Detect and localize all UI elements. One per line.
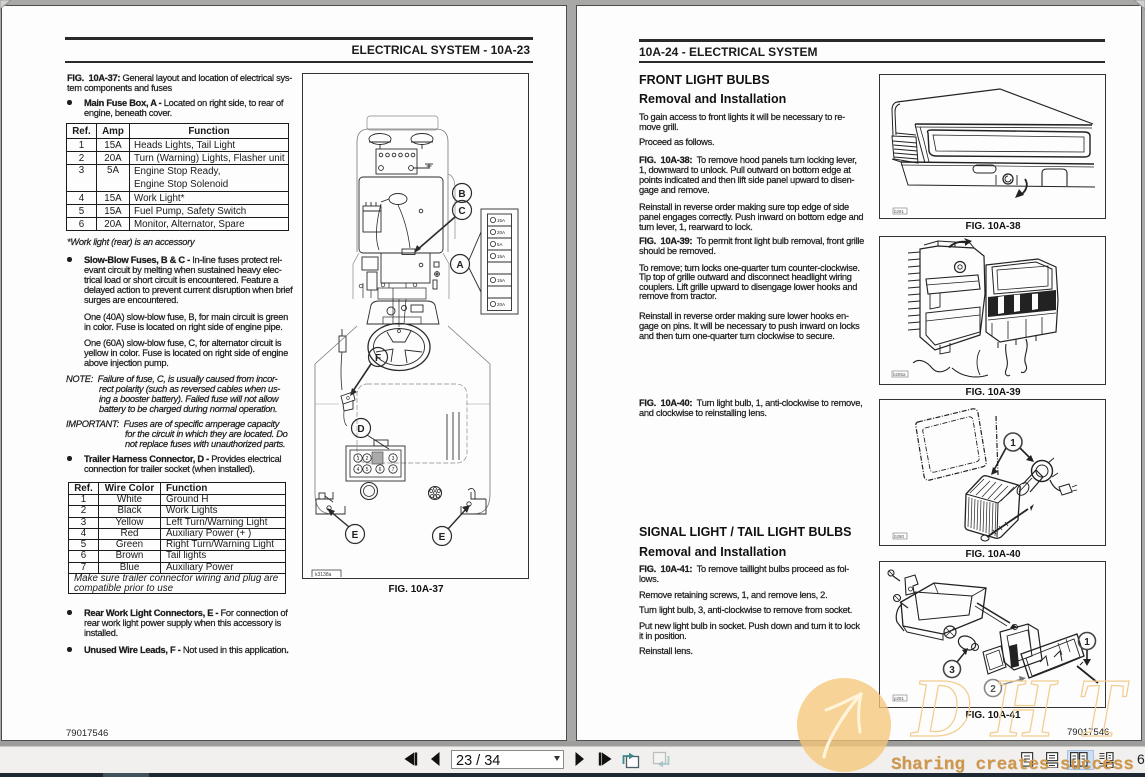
svg-text:2: 2 — [366, 456, 369, 462]
svg-text:15A: 15A — [497, 278, 505, 283]
svg-text:b285a: b285a — [893, 372, 906, 377]
svg-text:1: 1 — [1084, 637, 1090, 648]
svg-text:b281: b281 — [894, 209, 905, 214]
svg-text:B: B — [458, 189, 465, 200]
svg-text:7: 7 — [392, 467, 395, 473]
svg-text:b280: b280 — [894, 534, 905, 539]
svg-text:F: F — [375, 353, 381, 364]
svg-text:A: A — [456, 260, 463, 271]
svg-text:p281: p281 — [894, 696, 905, 701]
svg-text:E: E — [439, 532, 446, 543]
svg-text:6: 6 — [379, 467, 382, 473]
svg-text:C: C — [458, 206, 465, 217]
svg-text:D: D — [357, 424, 364, 435]
svg-text:4: 4 — [357, 467, 360, 473]
svg-text:20A: 20A — [497, 230, 505, 235]
svg-text:20A: 20A — [497, 302, 505, 307]
svg-text:15A: 15A — [497, 218, 505, 223]
svg-text:E: E — [352, 530, 359, 541]
svg-text:15A: 15A — [497, 254, 505, 259]
svg-text:5A: 5A — [497, 242, 503, 247]
svg-text:1: 1 — [357, 456, 360, 462]
svg-text:5: 5 — [366, 467, 369, 473]
svg-text:3: 3 — [949, 665, 955, 676]
svg-text:1: 1 — [1010, 438, 1016, 449]
svg-text:3: 3 — [392, 456, 395, 462]
svg-text:2: 2 — [990, 684, 996, 695]
svg-text:k3138a: k3138a — [315, 572, 332, 577]
